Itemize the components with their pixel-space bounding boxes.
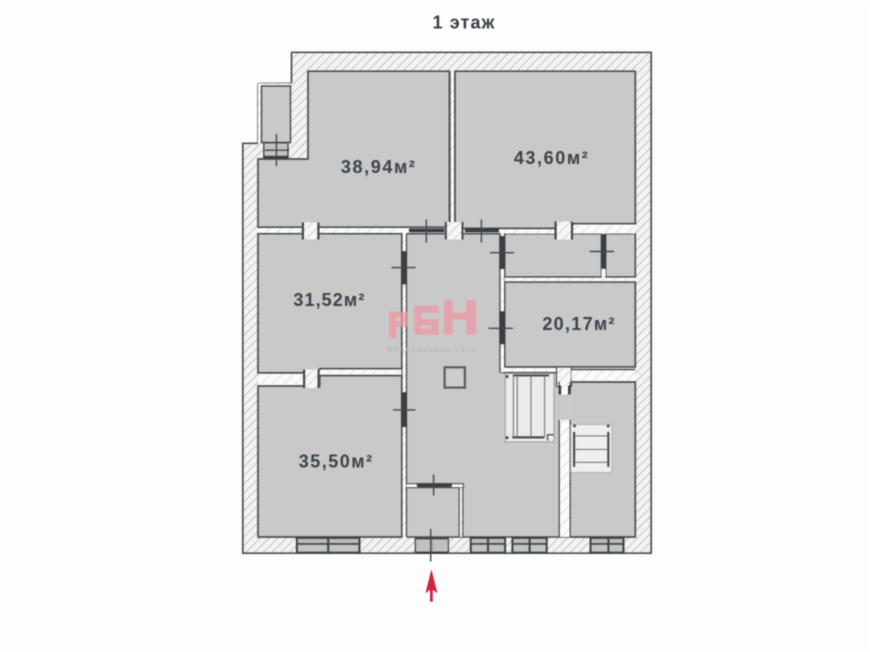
- svg-text:43,60м²: 43,60м²: [514, 148, 590, 168]
- svg-text:20,17м²: 20,17м²: [542, 314, 615, 334]
- svg-text:Федеральная сеть: Федеральная сеть: [387, 344, 477, 353]
- svg-text:1 этаж: 1 этаж: [433, 13, 496, 33]
- svg-text:38,94м²: 38,94м²: [341, 157, 417, 177]
- svg-text:35,50м²: 35,50м²: [299, 452, 374, 472]
- svg-text:31,52м²: 31,52м²: [293, 290, 365, 310]
